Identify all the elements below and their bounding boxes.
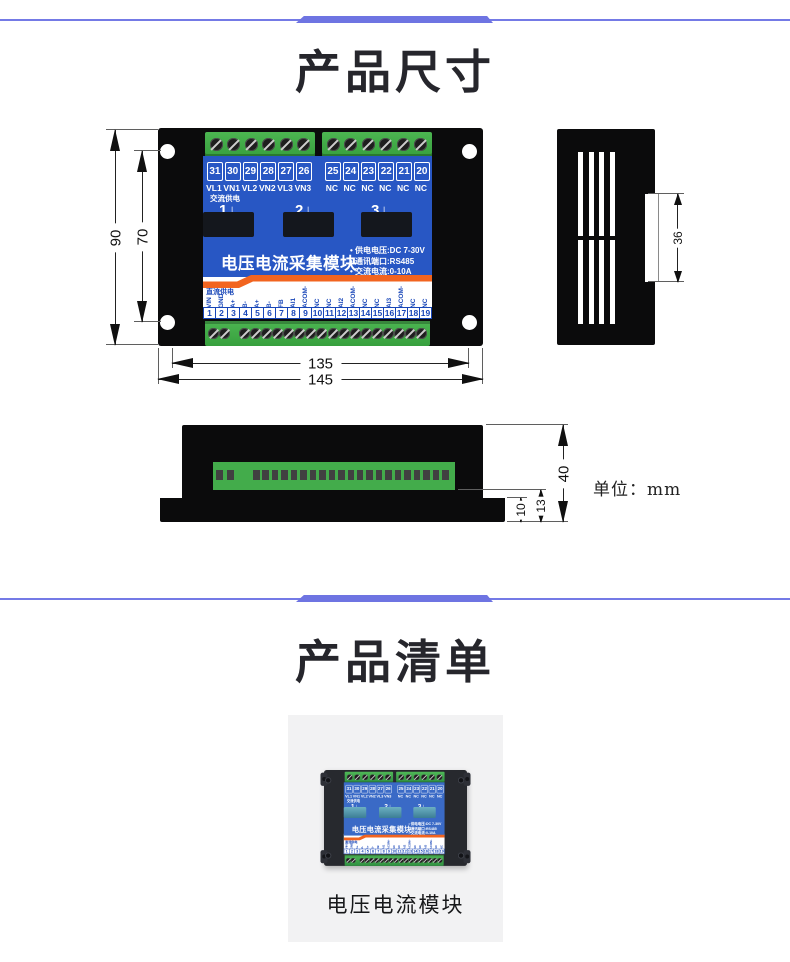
dimension-label: 40 (556, 459, 573, 488)
extension-line (486, 424, 568, 425)
terminal-hole (338, 470, 345, 480)
terminal-number: 8 (287, 307, 299, 319)
front-panel: 313029282726252423222120VL1VN1VL2VN2VL3V… (203, 156, 432, 277)
vent-slot (599, 152, 604, 236)
terminal-number: 28 (260, 162, 276, 181)
terminal-number: 12 (335, 307, 347, 319)
dimension-depth-10: 10 (520, 498, 521, 522)
terminal-number: 30 (225, 162, 241, 181)
terminal-label-row-bottom: VINGNDA+B-A+B-FBAI1ACOM-NCNCAI2ACOM-NCNC… (203, 287, 432, 307)
terminal-hole (329, 470, 336, 480)
product-card: 313029282726252423222120VL1VN1VL2VN2VL3V… (288, 715, 503, 942)
terminal-label: ACOM- (302, 286, 309, 308)
terminal-label: NC (359, 183, 377, 193)
terminal-number: 20 (414, 162, 430, 181)
screw-icon (272, 328, 283, 339)
vent-slot (589, 240, 594, 324)
terminal-number: 11 (323, 307, 335, 319)
vent-slot (578, 240, 583, 324)
terminal-label: VL2 (360, 794, 368, 798)
screw-icon (383, 328, 394, 339)
screw-icon (316, 328, 327, 339)
terminal-hole (272, 470, 279, 480)
section-title-list: 产品清单 (0, 626, 790, 692)
mounting-hole (458, 777, 465, 784)
screw-icon (350, 328, 361, 339)
terminal-number: 27 (377, 785, 384, 793)
terminal-label: NC (436, 794, 444, 798)
screw-icon (370, 774, 376, 780)
terminal-hole (376, 470, 383, 480)
dimension-label: 135 (300, 356, 341, 373)
current-transformer (379, 807, 401, 818)
terminal-number: 15 (371, 307, 383, 319)
terminal-label: VN2 (258, 183, 276, 193)
vent-slot (599, 240, 604, 324)
terminal-hole (310, 470, 317, 480)
screw-icon (239, 328, 250, 339)
terminal-number: 31 (346, 785, 353, 793)
terminal-number-row-bottom: 12345678910111213141516171819 (203, 307, 432, 319)
screw-icon (245, 138, 258, 151)
terminal-number: 26 (385, 785, 392, 793)
terminal-block-top (205, 132, 315, 157)
terminal-number: 4 (239, 307, 251, 319)
side-view-drawing (557, 129, 655, 345)
terminal-label: ACOM- (430, 840, 433, 850)
terminal-label-row: VL1VN1VL2VN2VL3VN3 (205, 183, 312, 193)
vent-slot (578, 152, 583, 236)
terminal-label-row: NCNCNCNCNCNC (323, 183, 430, 193)
product-photo-module: 313029282726252423222120VL1VN1VL2VN2VL3V… (324, 770, 467, 866)
terminal-hole (357, 470, 364, 480)
terminal-number: 26 (296, 162, 312, 181)
terminal-label: VN3 (294, 183, 312, 193)
mounting-hole (458, 852, 465, 859)
screw-icon (327, 138, 340, 151)
terminal-hole (348, 470, 355, 480)
terminal-number: 30 (353, 785, 360, 793)
terminal-number: 25 (325, 162, 341, 181)
dimension-height-90: 90 (115, 130, 116, 345)
terminal-number: 29 (243, 162, 259, 181)
screw-icon (385, 774, 391, 780)
terminal-number: 18 (407, 307, 419, 319)
screw-icon (398, 774, 404, 780)
terminal-label: NC (412, 183, 430, 193)
terminal-number: 2 (215, 307, 227, 319)
screw-icon (414, 774, 420, 780)
bottom-view-connector (213, 462, 455, 490)
dimension-width-145: 145 (158, 379, 483, 380)
screw-icon (261, 328, 272, 339)
unit-note: 单位：mm (593, 475, 681, 500)
terminal-number: 3 (227, 307, 239, 319)
spec-item: • 供电电压:DC 7-30V (350, 246, 425, 257)
screw-icon (262, 138, 275, 151)
screw-icon (437, 774, 443, 780)
terminal-number-row-bottom: 12345678910111213141516171819 (344, 849, 445, 854)
screw-icon (414, 138, 427, 151)
current-transformer (283, 212, 334, 237)
dimension-depth-13: 13 (540, 490, 541, 522)
screw-icon (328, 328, 339, 339)
terminal-number: 13 (347, 307, 359, 319)
terminal-label: NC (394, 183, 412, 193)
terminal-label: NC (404, 794, 412, 798)
dimension-label: 36 (671, 228, 685, 247)
screw-icon (351, 858, 356, 863)
terminal-number: 27 (278, 162, 294, 181)
vent-slot (589, 152, 594, 236)
module-name: 电压电流采集模块 (352, 824, 412, 835)
terminal-number: 24 (343, 162, 359, 181)
screw-icon (280, 138, 293, 151)
current-transformer (361, 212, 412, 237)
screw-icon (294, 328, 305, 339)
terminal-label: ACOM- (409, 840, 412, 850)
terminal-hole (433, 470, 440, 480)
terminal-number: 31 (207, 162, 223, 181)
bottom-view-flange (160, 498, 505, 522)
screw-icon (208, 328, 219, 339)
dimension-width-135: 135 (172, 363, 469, 364)
product-photo: 313029282726252423222120VL1VN1VL2VN2VL3V… (324, 770, 467, 866)
screw-icon (210, 138, 223, 151)
product-caption: 电压电流模块 (288, 889, 503, 919)
terminal-label-row-bottom: VINGNDA+B-A+B-FBAI1ACOM-NCNCAI2ACOM-NCNC… (344, 840, 445, 849)
terminal-hole (319, 470, 326, 480)
terminal-number: 6 (263, 307, 275, 319)
terminal-number: 24 (405, 785, 412, 793)
mounting-ear (463, 850, 470, 863)
terminal-block-top (345, 772, 393, 783)
screw-icon (305, 328, 316, 339)
terminal-hole (395, 470, 402, 480)
terminal-number-row: 313029282726 (346, 785, 392, 793)
terminal-number: 19 (439, 849, 445, 854)
mounting-hole (160, 315, 175, 330)
terminal-label: ACOM- (350, 286, 357, 308)
screw-icon (437, 858, 442, 863)
terminal-number: 14 (359, 307, 371, 319)
terminal-number: 23 (413, 785, 420, 793)
terminal-number: 21 (429, 785, 436, 793)
terminal-number: 22 (378, 162, 394, 181)
terminal-number-row: 252423222120 (325, 162, 430, 181)
terminal-hole (442, 470, 449, 480)
current-transformer (344, 807, 366, 818)
terminal-hole (281, 470, 288, 480)
mounting-hole (325, 777, 332, 784)
terminal-label: GND (218, 294, 225, 308)
terminal-number-row: 313029282726 (207, 162, 312, 181)
screw-icon (421, 774, 427, 780)
dimension-label: 90 (108, 223, 125, 252)
terminal-block-top (396, 772, 444, 783)
terminal-number: 7 (275, 307, 287, 319)
front-panel: 313029282726252423222120VL1VN1VL2VN2VL3V… (344, 782, 445, 835)
screw-icon (394, 328, 405, 339)
dimension-depth-40: 40 (563, 425, 564, 522)
terminal-hole (253, 470, 260, 480)
current-transformer (413, 807, 435, 818)
terminal-label: NC (376, 183, 394, 193)
terminal-number-row: 252423222120 (397, 785, 443, 793)
current-transformer (203, 212, 254, 237)
mounting-hole (462, 315, 477, 330)
vent-slot (610, 240, 615, 324)
terminal-label: NC (341, 183, 359, 193)
screw-icon (344, 138, 357, 151)
terminal-label: NC (420, 794, 428, 798)
terminal-label: VN1 (223, 183, 241, 193)
terminal-number: 28 (369, 785, 376, 793)
terminal-block-top (322, 132, 432, 157)
screw-icon (379, 138, 392, 151)
screw-icon (405, 328, 416, 339)
screw-icon (361, 328, 372, 339)
front-view-drawing: 313029282726252423222120VL1VN1VL2VN2VL3V… (158, 128, 483, 346)
dimension-label: 10 (514, 500, 528, 519)
spec-item: • 通讯端口:RS485 (350, 257, 425, 268)
mounting-hole (325, 852, 332, 859)
mounting-ear (463, 773, 470, 786)
terminal-hole (262, 470, 269, 480)
screw-icon (406, 774, 412, 780)
terminal-label: VN3 (384, 794, 392, 798)
terminal-number: 10 (311, 307, 323, 319)
terminal-number: 9 (299, 307, 311, 319)
terminal-number: 16 (383, 307, 395, 319)
terminal-label: ACOM- (398, 286, 405, 308)
page: 产品尺寸 313029282726252423222120VL1VN1VL2VN… (0, 0, 790, 962)
terminal-number: 19 (419, 307, 432, 319)
screw-icon (429, 774, 435, 780)
section-divider-accent (296, 16, 493, 23)
dimension-label: 145 (300, 372, 341, 389)
terminal-hole (423, 470, 430, 480)
terminal-hole (216, 470, 223, 480)
module-name: 电压电流采集模块 (221, 250, 357, 274)
dimension-height-70: 70 (142, 151, 143, 322)
dimension-side-36: 36 (677, 194, 678, 282)
terminal-hole (227, 470, 234, 480)
screw-icon (416, 328, 427, 339)
terminal-hole (385, 470, 392, 480)
mounting-hole (462, 144, 477, 159)
screw-icon (347, 774, 353, 780)
terminal-number: 22 (421, 785, 428, 793)
terminal-number: 29 (361, 785, 368, 793)
terminal-number: 21 (396, 162, 412, 181)
dimension-label: 13 (534, 496, 548, 515)
terminal-label: VL3 (376, 794, 384, 798)
vent-slot (610, 152, 615, 236)
terminal-label: ACOM- (387, 840, 390, 850)
terminal-hole (291, 470, 298, 480)
terminal-label: NC (323, 183, 341, 193)
screw-icon (362, 138, 375, 151)
screw-icon (227, 138, 240, 151)
section-divider-accent (296, 595, 493, 602)
spec-list: • 供电电压:DC 7-30V• 通讯端口:RS485• 交流电流:0-10A (408, 822, 441, 836)
terminal-label: NC (428, 794, 436, 798)
terminal-number: 5 (251, 307, 263, 319)
screw-icon (283, 328, 294, 339)
terminal-label: NC (412, 794, 420, 798)
terminal-hole (366, 470, 373, 480)
screw-icon (362, 774, 368, 780)
screw-icon (397, 138, 410, 151)
screw-icon (339, 328, 350, 339)
screw-icon (297, 138, 310, 151)
dimension-label: 70 (135, 222, 152, 251)
section-title-dimensions: 产品尺寸 (0, 36, 790, 102)
screw-icon (378, 774, 384, 780)
terminal-label: VL1 (205, 183, 223, 193)
screw-icon (250, 328, 261, 339)
terminal-block-bottom (205, 321, 430, 346)
terminal-number: 17 (395, 307, 407, 319)
screw-icon (219, 328, 230, 339)
terminal-number: 1 (203, 307, 215, 319)
terminal-label: NC (397, 794, 405, 798)
spec-list: • 供电电压:DC 7-30V• 通讯端口:RS485• 交流电流:0-10A (350, 246, 425, 278)
terminal-label-row: NCNCNCNCNCNC (397, 794, 444, 798)
terminal-block-bottom (345, 855, 444, 866)
terminal-number: 23 (361, 162, 377, 181)
terminal-label: VN2 (368, 794, 376, 798)
screw-icon (372, 328, 383, 339)
side-connector-notch (645, 194, 659, 282)
terminal-number: 20 (437, 785, 444, 793)
mounting-hole (160, 144, 175, 159)
terminal-number: 25 (397, 785, 404, 793)
terminal-label: VL3 (276, 183, 294, 193)
screw-icon (354, 774, 360, 780)
terminal-hole (300, 470, 307, 480)
terminal-hole (414, 470, 421, 480)
terminal-hole (404, 470, 411, 480)
terminal-label: VL2 (241, 183, 259, 193)
extension-line (458, 489, 546, 490)
